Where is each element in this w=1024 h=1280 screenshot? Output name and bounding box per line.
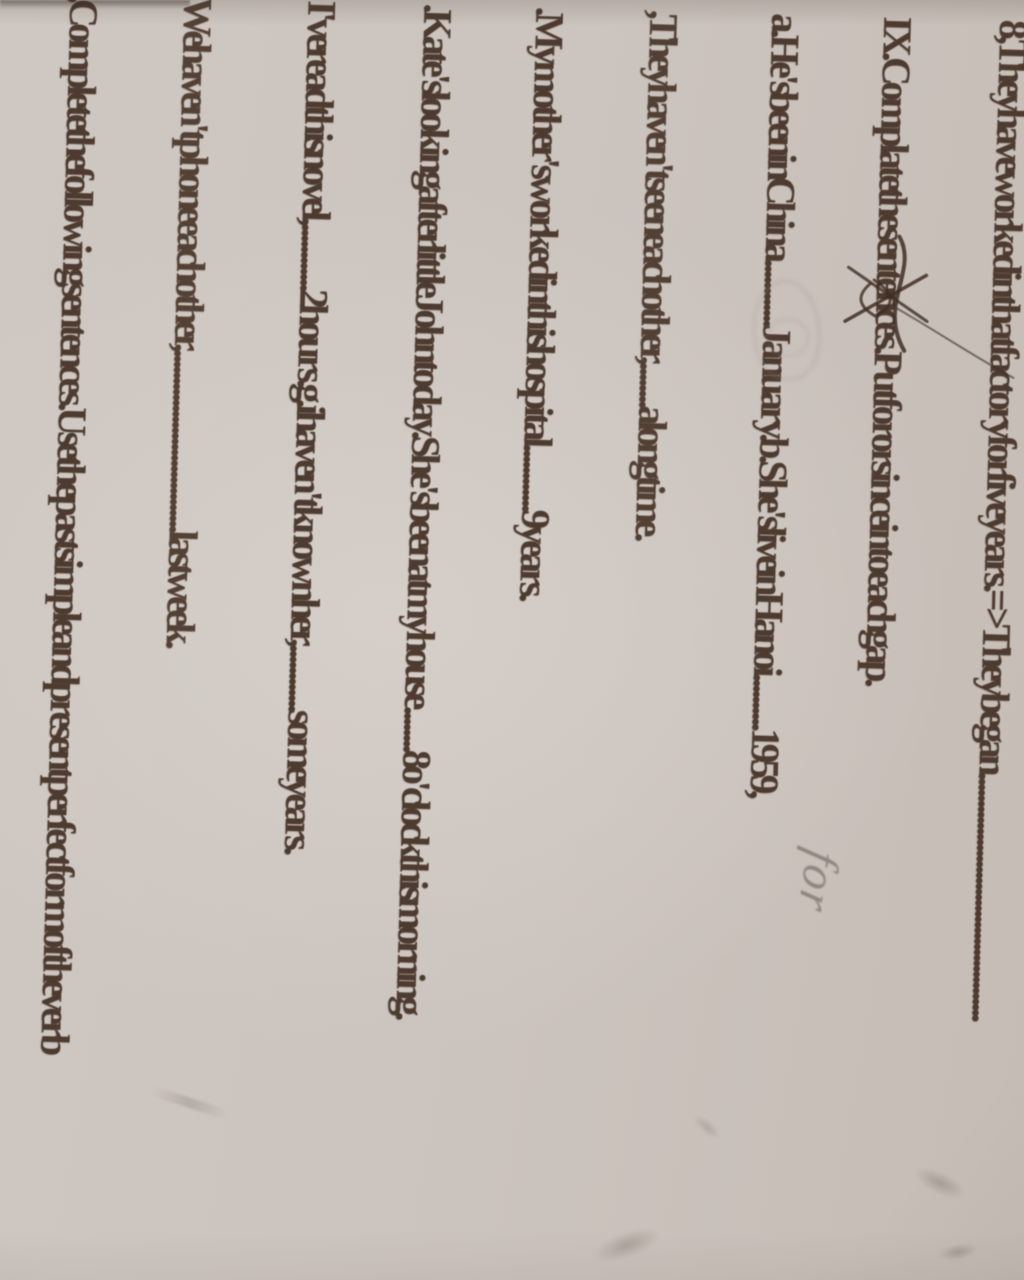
- photo-edge-shadow: [0, 0, 190, 9]
- document-text-block: 8, They have worked in that factory for …: [0, 0, 1024, 1280]
- erased-pencil-mark: [751, 279, 822, 382]
- line-item-d: .My mother's worked in this hospital....…: [507, 6, 576, 599]
- line-exercise-x: , Complete the following sentences. Use …: [28, 0, 110, 1052]
- line-item-c: , They haven't seen each other,........a…: [623, 9, 690, 539]
- worksheet-photo: 8, They have worked in that factory for …: [0, 0, 1024, 1280]
- ink-scribble: [813, 220, 1024, 396]
- line-example-8: 8, They have worked in that factory for …: [960, 19, 1024, 1020]
- pencil-handwriting-for: for: [786, 844, 849, 919]
- line-item-h: We haven't phone each other,............…: [154, 0, 224, 646]
- line-item-f-g: I've read this novel,............2 hours…: [272, 0, 348, 853]
- line-item-a-b: a.He's been in China............January.…: [738, 13, 812, 797]
- line-item-e: .Kate's looking after little John today.…: [383, 3, 463, 1018]
